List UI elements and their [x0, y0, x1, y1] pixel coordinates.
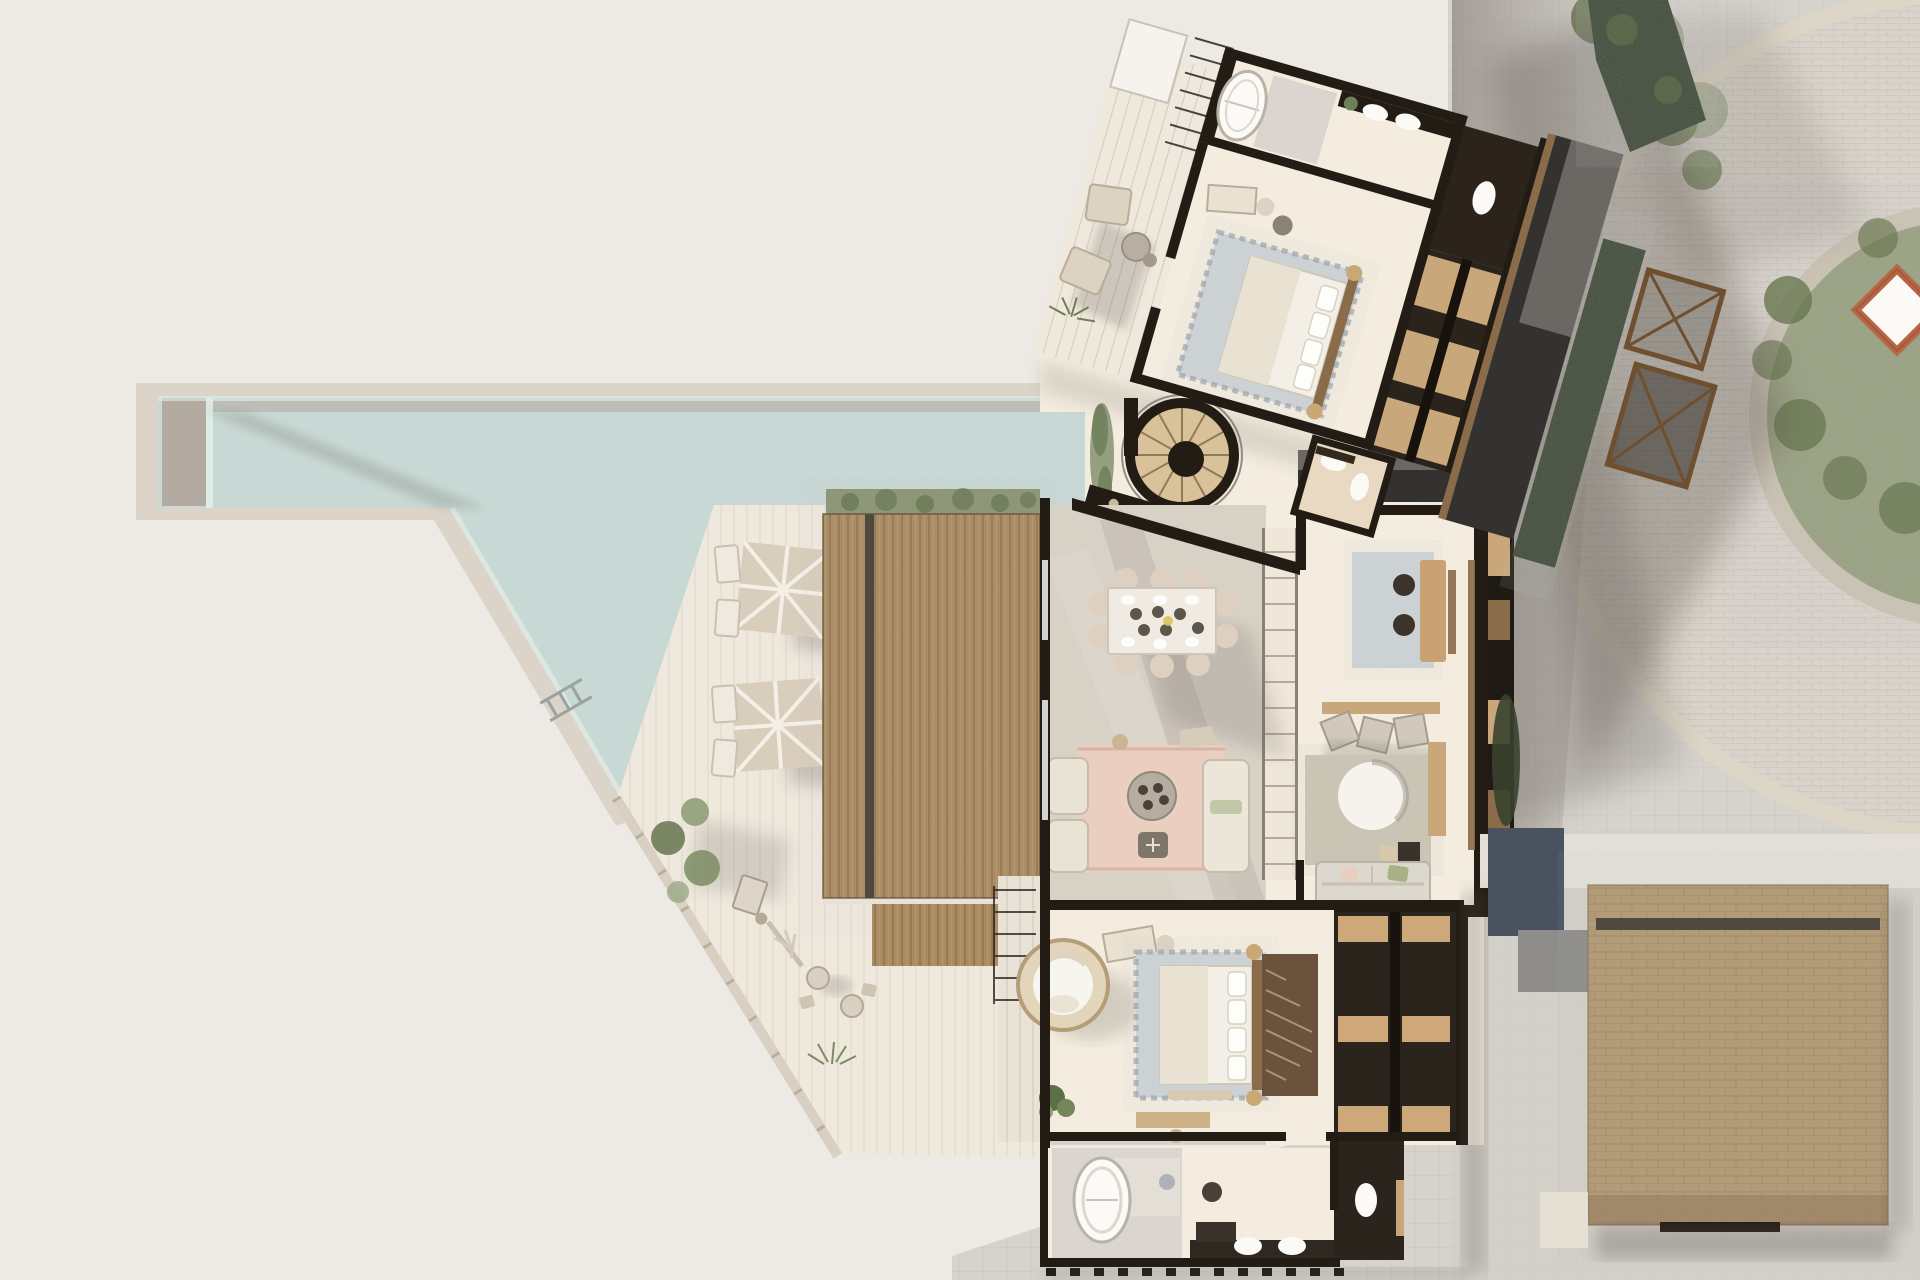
- gray-roof-step: [1518, 930, 1590, 992]
- olive-pillow: [1387, 865, 1409, 883]
- powder-room: [1294, 439, 1392, 534]
- feature-wall-panel: [1262, 954, 1318, 1096]
- south-bedroom-wing: [994, 876, 1468, 1280]
- duvet: [1160, 966, 1208, 1084]
- building-shadow: [1596, 1225, 1892, 1259]
- armchair: [1048, 758, 1088, 814]
- dressing-room: [1334, 912, 1456, 1134]
- basin-1: [1234, 1237, 1262, 1255]
- chaise: [1203, 760, 1249, 872]
- roof-groove: [865, 514, 874, 898]
- stair-wall: [1124, 398, 1138, 456]
- vanity-cabinet: [1196, 1222, 1236, 1242]
- bed-bench: [1168, 1090, 1232, 1100]
- site-plan-rendering: [0, 0, 1920, 1280]
- floor-drain: [1159, 1174, 1175, 1190]
- round-coffee-table: [1128, 772, 1176, 820]
- water-edge-highlight: [158, 396, 1088, 401]
- roof-fascia: [1588, 1195, 1888, 1225]
- nightstand-2: [1246, 1090, 1262, 1106]
- console-table: [1136, 1112, 1210, 1128]
- bed-suite-south: [1136, 944, 1318, 1106]
- pool-tanning-shelf: [162, 398, 206, 506]
- headboard: [1252, 960, 1262, 1090]
- toilet: [1355, 1183, 1377, 1217]
- south-bathroom: [1046, 1140, 1404, 1260]
- bench-slat: [1448, 570, 1456, 654]
- west-lounge-set: [1048, 726, 1249, 873]
- brick-building: [1588, 885, 1910, 1259]
- shelf-edge-highlight: [206, 398, 213, 508]
- beige-patch: [1540, 1192, 1588, 1248]
- side-stool: [1112, 734, 1128, 750]
- basin-2: [1278, 1237, 1306, 1255]
- navy-flat-roof: [1488, 828, 1564, 936]
- wood-console: [1322, 702, 1440, 714]
- skylight-slot: [1596, 918, 1880, 930]
- spiral-staircase: [1122, 395, 1242, 515]
- dark-chair-2: [1393, 614, 1415, 636]
- villa-east-shadow-strip: [1462, 892, 1486, 1272]
- tall-grass: [1492, 694, 1520, 826]
- bath-stool: [1202, 1182, 1222, 1202]
- tan-cabinet: [1428, 742, 1446, 836]
- wc-niche: [1334, 1140, 1404, 1260]
- floor-plan-canvas: [0, 0, 1920, 1280]
- nightstand-1: [1246, 944, 1262, 960]
- dark-chair-1: [1393, 574, 1415, 596]
- armchair-2: [1048, 820, 1088, 872]
- wood-dining-table: [1420, 560, 1446, 662]
- vanity-counter: [1190, 1240, 1334, 1258]
